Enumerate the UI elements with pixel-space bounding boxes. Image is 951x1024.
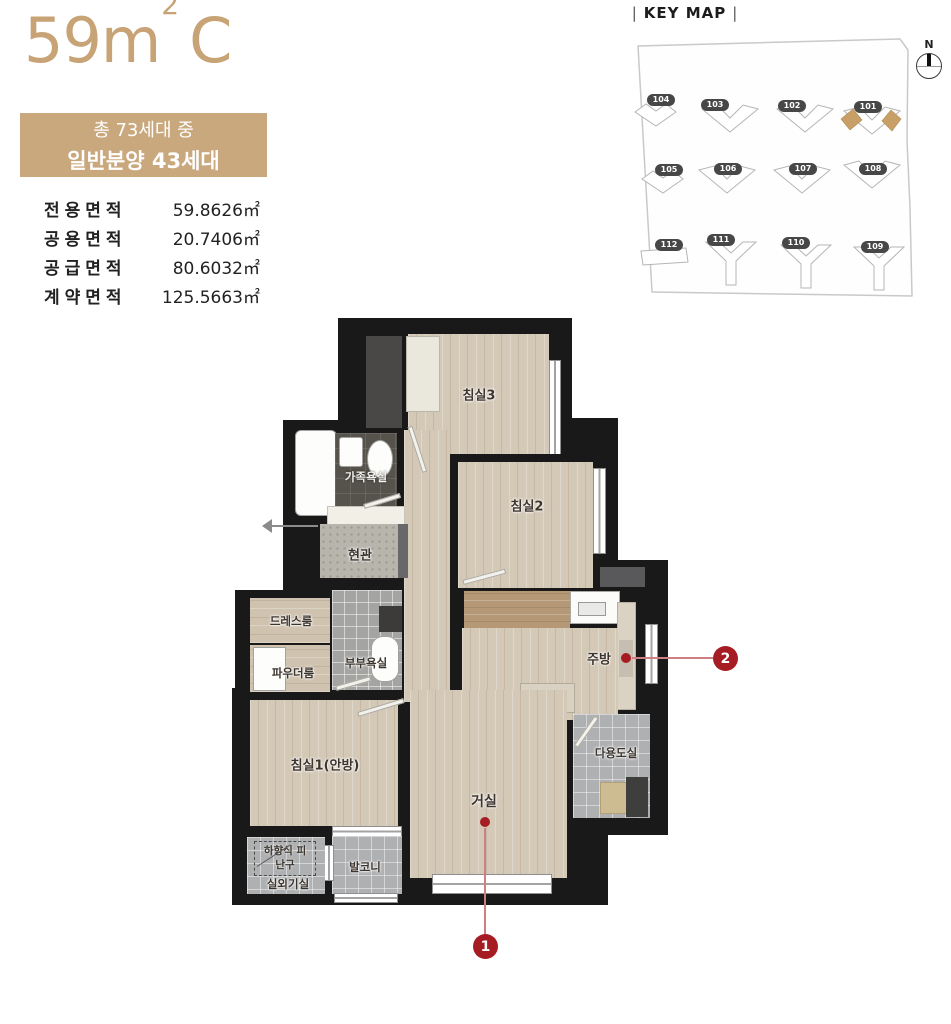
bathtub (295, 430, 337, 516)
unit-title-sup: 2 (161, 0, 178, 21)
building-badge-109: 109 (861, 241, 889, 253)
area-row-exclusive: 전용면적 59.8626㎡ (44, 194, 260, 223)
key-map-bar: | (732, 4, 738, 22)
entry-arrow-head (262, 519, 272, 533)
closet (366, 336, 402, 428)
marker-dot-1 (480, 817, 490, 827)
building-badge-102: 102 (778, 100, 806, 112)
kitchen-sink (578, 602, 606, 616)
household-general: 일반분양 43세대 (67, 145, 219, 175)
marker-line-2 (632, 657, 713, 659)
area-value: 20.7406㎡ (173, 225, 260, 250)
window (334, 893, 398, 903)
window (593, 468, 606, 554)
marker-1: 1 (473, 934, 498, 959)
floor-plan-page: 59m2C 총 73세대 중 일반분양 43세대 전용면적 59.8626㎡ 공… (0, 0, 951, 1024)
room-label-bedroom3: 침실3 (463, 385, 496, 404)
entry-arrow (272, 525, 318, 527)
area-label: 계약면적 (44, 283, 127, 308)
unit-title-type: C (189, 4, 231, 77)
building-badge-103: 103 (701, 99, 729, 111)
sink (339, 437, 363, 467)
area-value: 125.5663㎡ (162, 283, 260, 308)
area-value: 59.8626㎡ (173, 196, 260, 221)
unit-title-main: 59m (24, 4, 160, 77)
marker-dot-2 (621, 653, 631, 663)
household-total: 총 73세대 중 (93, 116, 194, 142)
compass-dial (916, 53, 942, 79)
room-label-master-bath: 부부욕실 (345, 655, 387, 671)
key-map-label: KEY MAP (644, 4, 726, 22)
ac-unit (600, 567, 645, 587)
building-badge-105: 105 (655, 164, 683, 176)
marker-line-1 (484, 828, 486, 935)
window (432, 874, 552, 894)
building-badge-107: 107 (789, 163, 817, 175)
area-row-supply: 공급면적 80.6032㎡ (44, 252, 260, 281)
area-table: 전용면적 59.8626㎡ 공용면적 20.7406㎡ 공급면적 80.6032… (44, 194, 260, 310)
building-badge-112: 112 (655, 239, 683, 251)
room-label-kitchen: 주방 (587, 649, 611, 668)
area-label: 공용면적 (44, 225, 127, 250)
building-badge-104: 104 (647, 94, 675, 106)
building-badge-111: 111 (707, 234, 735, 246)
window (549, 360, 561, 458)
room-label-family-bath: 가족욕실 (345, 469, 387, 485)
compass-icon: N (914, 38, 944, 86)
building-badge-110: 110 (782, 237, 810, 249)
building-badge-106: 106 (714, 163, 742, 175)
window (324, 845, 334, 881)
room-label-utility: 다용도실 (595, 745, 637, 761)
room-label-balcony: 발코니 (349, 859, 381, 875)
wardrobe (406, 336, 440, 412)
kitchen-island-counter (464, 591, 570, 629)
room-bedroom2-floor (458, 462, 593, 588)
room-label-outdoor-unit: 실외기실 (267, 876, 309, 892)
window (645, 624, 658, 684)
utility-cabinet (626, 777, 648, 817)
marker-2: 2 (713, 646, 738, 671)
area-label: 전용면적 (44, 196, 127, 221)
room-label-bedroom2: 침실2 (511, 496, 544, 515)
unit-title: 59m2C (24, 10, 231, 72)
area-value: 80.6032㎡ (173, 254, 260, 279)
compass-north-label: N (914, 38, 944, 51)
key-map-bar: | (632, 4, 638, 22)
building-badge-108: 108 (859, 163, 887, 175)
area-label: 공급면적 (44, 254, 127, 279)
room-living-floor (410, 690, 567, 878)
room-label-dress: 드레스룸 (270, 613, 312, 629)
area-row-common: 공용면적 20.7406㎡ (44, 223, 260, 252)
building-badge-101: 101 (854, 101, 882, 113)
room-label-powder: 파우더룸 (272, 665, 314, 681)
room-label-entrance: 현관 (348, 545, 372, 564)
front-door (398, 524, 408, 578)
shaft (379, 606, 402, 632)
room-label-bedroom1: 침실1(안방) (291, 755, 360, 774)
area-row-contract: 계약면적 125.5663㎡ (44, 281, 260, 310)
household-badge: 총 73세대 중 일반분양 43세대 (20, 113, 267, 177)
shoe-cabinet (327, 506, 405, 526)
room-label-living: 거실 (471, 791, 497, 811)
washer (600, 782, 628, 814)
key-map-title: |KEY MAP| (620, 4, 750, 22)
